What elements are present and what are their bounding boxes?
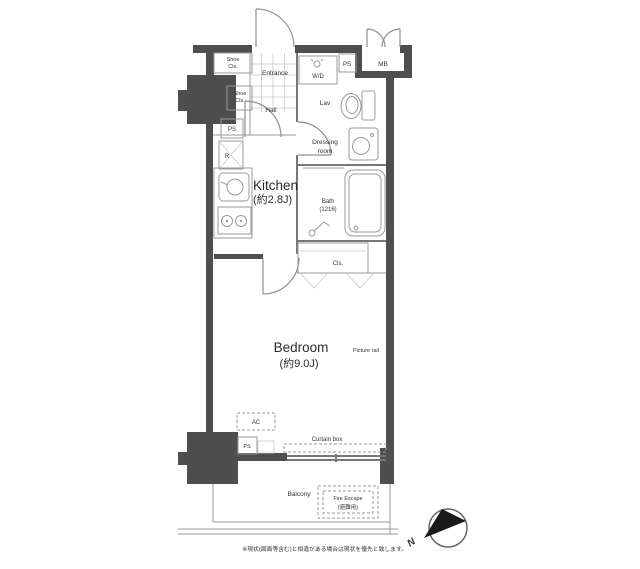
kitchen-sink — [219, 173, 249, 201]
shoe-closet-upper — [214, 53, 252, 73]
shoe-closet-upper-label1: Shoe — [227, 57, 240, 63]
entrance-door — [256, 9, 294, 47]
fire-escape-hatch — [318, 486, 378, 518]
column-top-left — [187, 75, 236, 124]
dressing-room-label1: Dressing — [312, 139, 338, 146]
kitchen-stove — [218, 207, 251, 234]
bifold-door-right — [347, 274, 373, 288]
fire-escape-label2: (避難用) — [338, 503, 358, 511]
picture-rail-label: Picture rail — [353, 348, 379, 354]
refrigerator-label: R — [225, 154, 230, 160]
pipe-space-bottom-label: PS — [243, 444, 251, 450]
shoe-closet-lower-label2: Cls. — [235, 98, 245, 104]
toilet — [341, 91, 375, 120]
fire-escape-label1: Fire Escape — [333, 496, 362, 502]
meter-box-label: MB — [378, 61, 388, 68]
curtain-box-label: Curtain box — [312, 437, 343, 443]
closet-label: Cls. — [333, 261, 344, 267]
balcony-sliding-window — [287, 454, 386, 462]
shoe-closet-lower-label1: Shoe — [234, 91, 247, 97]
curtain-box — [284, 444, 386, 452]
hall-label: Hall — [265, 107, 277, 114]
kitchen-label: Kitchen — [253, 178, 298, 193]
lavatory-label: Lav — [320, 100, 331, 107]
air-conditioner-label: AC — [252, 420, 261, 426]
meter-box-doors — [367, 29, 400, 47]
pipe-space-top-label: PS — [343, 62, 351, 68]
dressing-room-label2: room — [318, 148, 333, 155]
shower-head — [309, 222, 330, 236]
compass: N — [405, 509, 467, 549]
bath-label: Bath — [322, 199, 334, 205]
bedroom-door — [263, 258, 299, 294]
column-bottom-left — [187, 432, 238, 484]
bedroom-label: Bedroom — [274, 340, 329, 355]
pipe-space-entrance-label: PS — [228, 127, 236, 133]
compass-north-label: N — [405, 536, 418, 550]
floor-plan-drawing: Shoe Cls. Entrance Shoe Cls. Hall PS R K… — [0, 0, 640, 569]
column-bottom-right — [380, 448, 394, 484]
shoe-closet-upper-label2: Cls. — [228, 64, 238, 70]
refrigerator-space — [219, 141, 243, 169]
footnote: ※現状(図面等含む)と相違がある場合は現状を優先と致します。 — [242, 545, 407, 553]
bath-size-label: (1216) — [319, 207, 336, 213]
washbasin — [349, 128, 378, 160]
bifold-door-left — [301, 274, 327, 288]
kitchen-size-label: (約2.8J) — [253, 192, 292, 206]
structural-walls — [178, 45, 412, 484]
kitchen-counter — [214, 168, 252, 238]
washer-dryer-label: W/D — [312, 74, 324, 80]
bathtub — [345, 170, 385, 236]
balcony-label: Balcony — [287, 491, 311, 498]
entrance-label: Entrance — [262, 70, 288, 77]
floor-plan-page: Shoe Cls. Entrance Shoe Cls. Hall PS R K… — [0, 0, 640, 569]
bedroom-size-label: (約9.0J) — [279, 356, 318, 370]
drain-unit — [258, 441, 274, 453]
